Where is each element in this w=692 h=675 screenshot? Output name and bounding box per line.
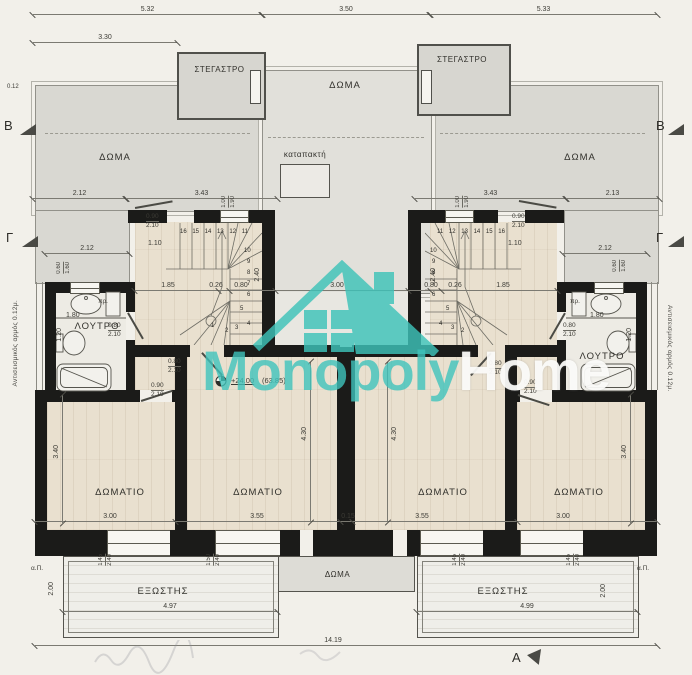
section-marker-b-right: B <box>656 118 665 133</box>
roof-dashed-line-center <box>268 137 424 138</box>
dim-label: 1.10 <box>148 240 162 247</box>
wall-segment <box>417 210 445 223</box>
seismic-joint-note-right: Αντισεισμικός αρμός 0.12μ. <box>666 305 673 392</box>
dim-label: 3.55 <box>250 513 264 520</box>
window-dim: 1.502.40 <box>206 554 221 566</box>
room-label-hatch: καταπακτή <box>276 150 334 159</box>
room-label-balcony-right: ΕΞΩΣΤΗΣ <box>468 586 538 597</box>
stair-numbers-top-right: 11 12 13 14 15 16 <box>437 229 505 235</box>
wall-segment <box>126 340 135 392</box>
wall-segment <box>313 530 393 556</box>
toilet-icon <box>63 331 85 355</box>
tread-number: 1 <box>211 323 214 329</box>
dim-label: 3.40 <box>53 445 60 459</box>
hatch-opening <box>280 164 330 198</box>
dimension: 3.50 <box>262 14 430 15</box>
seismic-joint-line-right <box>651 282 658 390</box>
tread-number: 5 <box>240 306 243 312</box>
parapet-label-right: α.Π. <box>637 565 649 572</box>
wall-segment <box>172 390 187 402</box>
window-front-left-2 <box>215 530 282 556</box>
tread-number: 3 <box>235 325 238 331</box>
section-marker-g-left: Γ <box>6 230 13 245</box>
dim-label: 1.20 <box>626 328 633 342</box>
dim-label: 1.80 <box>66 312 80 319</box>
dimension: 3.40 <box>630 395 631 523</box>
dimension: 5.32 <box>33 14 262 15</box>
dim-label: 4.30 <box>391 427 398 441</box>
window-front-left-1 <box>107 530 172 556</box>
window-dim: 1.452.40 <box>566 554 581 566</box>
section-triangle <box>668 236 684 247</box>
dim-label: 1.10 <box>508 240 522 247</box>
dim-label: 3.00 <box>556 513 570 520</box>
window-dim: 0.601.60 <box>56 262 71 274</box>
window-front-right-1 <box>420 530 485 556</box>
wall-segment <box>472 210 498 223</box>
room-label-canopy-left: ΣΤΕΓΑΣΤΡΟ <box>177 65 262 74</box>
dim-label: 3.30 <box>98 34 112 41</box>
room-label-bath-left: ΛΟΥΤΡΟ <box>57 321 137 332</box>
wall-segment <box>280 530 300 556</box>
dim-label: 1.85 <box>161 282 175 289</box>
dimension: 2.12 <box>45 253 129 254</box>
window-front-right-2 <box>520 530 585 556</box>
dimension: 2.13 <box>566 198 659 199</box>
wall-segment <box>583 530 657 556</box>
window-dim: 1.001.90 <box>221 196 236 208</box>
room-label-bedroom-1: ΔΩΜΑΤΙΟ <box>85 487 155 498</box>
room-label-bedroom-2: ΔΩΜΑΤΙΟ <box>223 487 293 498</box>
dim-label: 3.43 <box>195 190 209 197</box>
wall-segment <box>636 293 647 392</box>
dim-label: 2.12 <box>73 190 87 197</box>
room-label-doma-strip: ΔΩΜΑ <box>300 570 375 579</box>
floor-bedroom-outer-left <box>47 402 175 530</box>
tread-number: 2 <box>225 328 228 334</box>
floor-bedroom-outer-right <box>517 402 645 530</box>
dimension: 2.12 <box>563 253 647 254</box>
watermark-text: MonopolyHome <box>202 338 610 403</box>
dim-label: 4.30 <box>301 427 308 441</box>
dim-label: 0.80 <box>234 282 248 289</box>
tread-number: 10 <box>430 248 437 254</box>
seismic-joint-note-left: Αντισεισμικός αρμός 0.12μ. <box>12 300 19 387</box>
dim-label: 3.43 <box>484 190 498 197</box>
door-dim: 0.902.10 <box>512 213 525 230</box>
section-marker-b-left: B <box>4 118 13 133</box>
wall-segment <box>35 530 107 556</box>
dim-label: 4.97 <box>163 603 177 610</box>
pencil-scribble <box>85 640 385 674</box>
dim-label: 1.85 <box>496 282 510 289</box>
dim-label: 0.15 <box>341 513 355 520</box>
dim-label: 2.00 <box>600 584 607 598</box>
wall-segment <box>170 530 215 556</box>
dimension: 5.33 <box>430 14 657 15</box>
door-dim: 0.802.10 <box>563 322 576 339</box>
window-dim: 1.452.40 <box>98 554 113 566</box>
canopy-pillar-right <box>421 70 432 104</box>
window-stair-left <box>220 210 249 223</box>
canopy-pillar-left <box>250 70 261 104</box>
window-dim: 1.452.40 <box>452 554 467 566</box>
dim-label: 5.32 <box>141 6 155 13</box>
section-marker-a: A <box>512 650 521 665</box>
dim-label: 1.80 <box>590 312 604 319</box>
roof-dashed-line-left <box>45 133 250 134</box>
dimension: 2.12 <box>33 198 126 199</box>
wall-segment <box>407 530 420 556</box>
dim-label: 0.26 <box>209 282 223 289</box>
dimension-chain: 3.00 3.55 0.15 3.55 3.00 <box>35 521 657 522</box>
dim-label: 2.12 <box>80 245 94 252</box>
wall-segment <box>557 285 566 312</box>
dim-label: 3.50 <box>339 6 353 13</box>
section-triangle <box>526 647 541 665</box>
dim-label: 0.26 <box>448 282 462 289</box>
window-stair-right <box>445 210 474 223</box>
door-dim: 0.902.10 <box>151 382 164 399</box>
wall-segment <box>525 210 564 223</box>
room-label-bedroom-3: ΔΩΜΑΤΙΟ <box>408 487 478 498</box>
dimension: 3.43 <box>415 198 566 199</box>
wall-segment <box>483 530 520 556</box>
room-label-doma-right: ΔΩΜΑ <box>540 152 620 163</box>
section-triangle <box>20 124 36 135</box>
dim-label: 1.20 <box>56 328 63 342</box>
balcony-left <box>63 556 279 638</box>
dim-label: 3.00 <box>103 513 117 520</box>
dimension: 3.43 <box>126 198 277 199</box>
section-triangle <box>668 124 684 135</box>
tread-number: 10 <box>244 248 251 254</box>
room-label-canopy-right: ΣΤΕΓΑΣΤΡΟ <box>417 55 507 64</box>
dim-label: 3.40 <box>621 445 628 459</box>
tread-number: 2 <box>461 328 464 334</box>
dim-label: 4.99 <box>520 603 534 610</box>
dimension: 4.99 <box>417 611 637 612</box>
dim-label: 2.00 <box>48 582 55 596</box>
watermark-brand-home: Home <box>458 339 610 402</box>
section-triangle <box>22 236 38 247</box>
room-label-doma-center: ΔΩΜΑ <box>305 80 385 91</box>
seismic-joint-line-left <box>36 282 43 390</box>
roof-dashed-line-right <box>440 133 645 134</box>
room-label-doma-left: ΔΩΜΑ <box>75 152 155 163</box>
dimension: 3.40 <box>62 395 63 523</box>
window-dim: 0.601.60 <box>612 260 627 272</box>
tread-number: 5 <box>446 306 449 312</box>
door-dim: 0.902.10 <box>146 213 159 230</box>
wall-segment <box>194 210 220 223</box>
room-label-bedroom-4: ΔΩΜΑΤΙΟ <box>544 487 614 498</box>
parapet-label-left: α.Π. <box>31 565 43 572</box>
dim-label: 2.12 <box>598 245 612 252</box>
closet-label-right: πρ. <box>570 298 580 305</box>
dim-label: 3.55 <box>415 513 429 520</box>
dimension: 4.97 <box>63 611 277 612</box>
door-dim: 0.802.10 <box>108 322 121 339</box>
bath-fixtures-left <box>56 288 126 394</box>
watermark-brand-monopoly: Monopoly <box>202 339 458 402</box>
floor-plan: 16 15 14 13 12 11 10 9 8 7 6 5 4 3 2 1 1… <box>0 0 692 675</box>
wall-segment <box>45 293 56 392</box>
stair-numbers-top-left: 16 15 14 13 12 11 <box>180 229 248 235</box>
room-label-balcony-left: ΕΞΩΣΤΗΣ <box>128 586 198 597</box>
dimension: 3.30 <box>33 42 177 43</box>
dim-label: 5.33 <box>537 6 551 13</box>
closet-label-left: πρ. <box>98 298 108 305</box>
shelf-icon <box>106 292 120 316</box>
dim-label: 0.12 <box>7 84 19 90</box>
tread-number: 3 <box>451 325 454 331</box>
dim-label: 2.13 <box>606 190 620 197</box>
door-dim: 0.802.10 <box>168 358 181 375</box>
window-dim: 1.001.90 <box>455 196 470 208</box>
section-marker-g-right: Γ <box>656 230 663 245</box>
